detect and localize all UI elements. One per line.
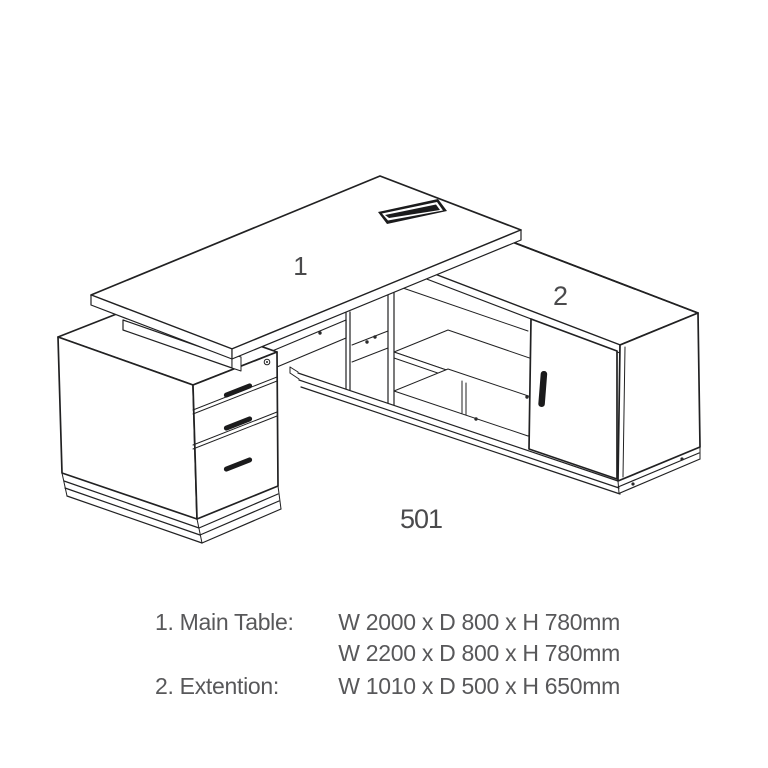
spec-value-extension: W 1010 x D 500 x H 650mm: [338, 671, 620, 702]
pedestal-plinth-front-edge: [197, 519, 202, 543]
cam-screw-icon: [525, 395, 528, 398]
label-main-table: 1: [293, 251, 307, 281]
cam-screw-icon: [631, 482, 634, 485]
spec-text-block: 1. Main Table: W 2000 x D 800 x H 780mm …: [155, 607, 620, 702]
cam-screw-icon: [365, 340, 368, 343]
connector-rail-bottom: [352, 348, 388, 362]
base-rail-step-top: [290, 367, 298, 372]
model-number: 501: [400, 504, 442, 534]
spec-label-main-table: 1. Main Table:: [155, 607, 294, 638]
cam-screw-icon: [373, 335, 376, 338]
center-leg-panel: [346, 310, 350, 390]
pedestal-plinth-3r: [202, 509, 281, 543]
spec-line-main-table-alt: W 2200 x D 800 x H 780mm: [155, 638, 620, 669]
base-rail-step-bottom: [290, 373, 299, 379]
pedestal-plinth-right-edge: [278, 486, 281, 509]
lock-pin-icon: [266, 361, 268, 363]
cam-screw-icon: [474, 417, 477, 420]
spec-label-extension: 2. Extention:: [155, 671, 279, 702]
cam-screw-icon: [680, 457, 683, 460]
connector-rail-top: [352, 331, 388, 345]
cam-screw-icon: [318, 331, 321, 334]
spec-value-main-table-2: W 2200 x D 800 x H 780mm: [338, 638, 620, 669]
pedestal-plinth-left-edge: [62, 473, 67, 496]
spec-line-main-table: 1. Main Table: W 2000 x D 800 x H 780mm: [155, 607, 620, 638]
technical-drawing-page: 1 2 501 1. Main Table: W 2000 x D 800 x …: [0, 0, 768, 768]
spec-line-extension: 2. Extention: W 1010 x D 500 x H 650mm: [155, 671, 620, 702]
label-extension: 2: [553, 281, 567, 311]
spec-value-main-table-1: W 2000 x D 800 x H 780mm: [338, 607, 620, 638]
plinth-corner-edge: [618, 481, 619, 493]
